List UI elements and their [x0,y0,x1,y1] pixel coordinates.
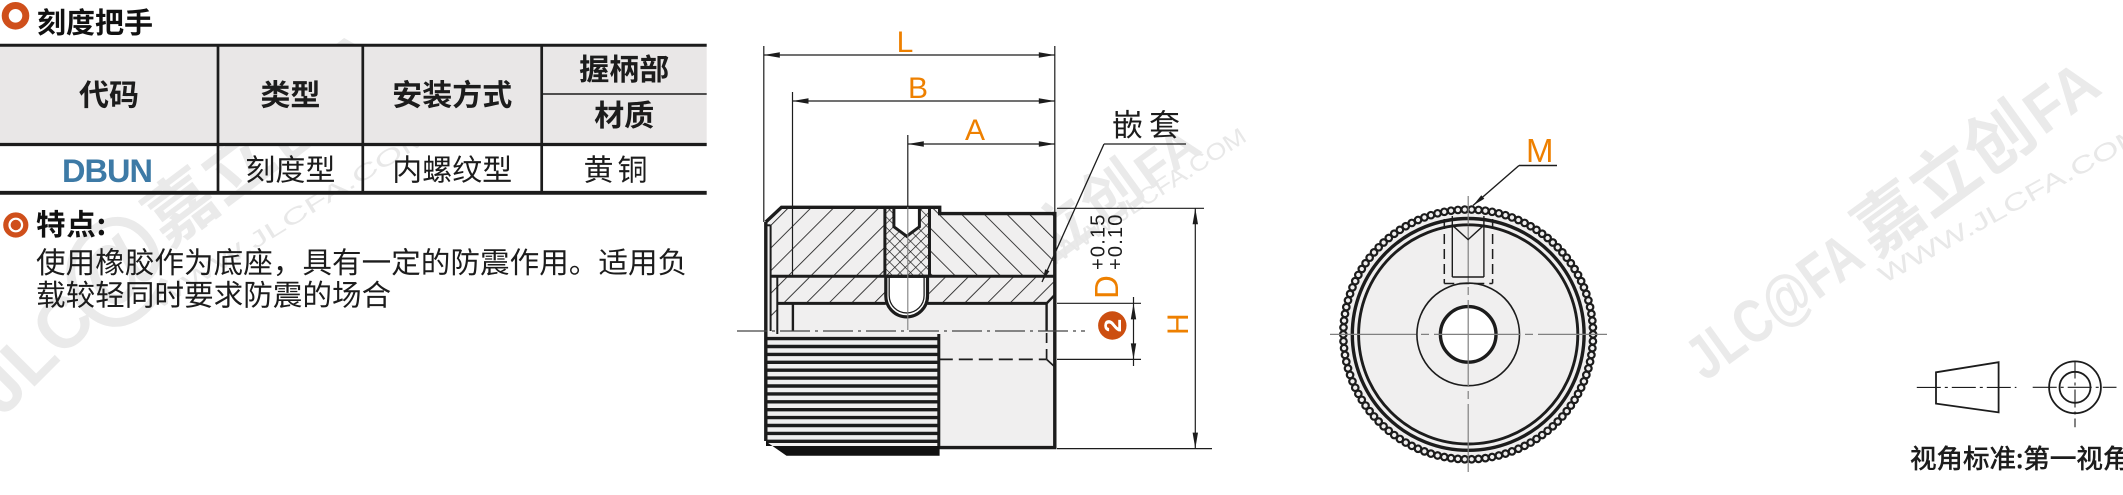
svg-text:M: M [1526,132,1554,169]
svg-text:B: B [908,72,928,105]
svg-text:2: 2 [1100,319,1127,332]
svg-text:A: A [965,114,985,147]
svg-text:L: L [897,26,914,59]
svg-text:DBUN: DBUN [62,153,152,189]
svg-text:+0.10: +0.10 [1105,213,1127,270]
svg-text:D: D [1088,275,1125,299]
svg-text:JLC@FA: JLC@FA [1673,220,1875,393]
svg-text:H: H [1162,313,1195,335]
